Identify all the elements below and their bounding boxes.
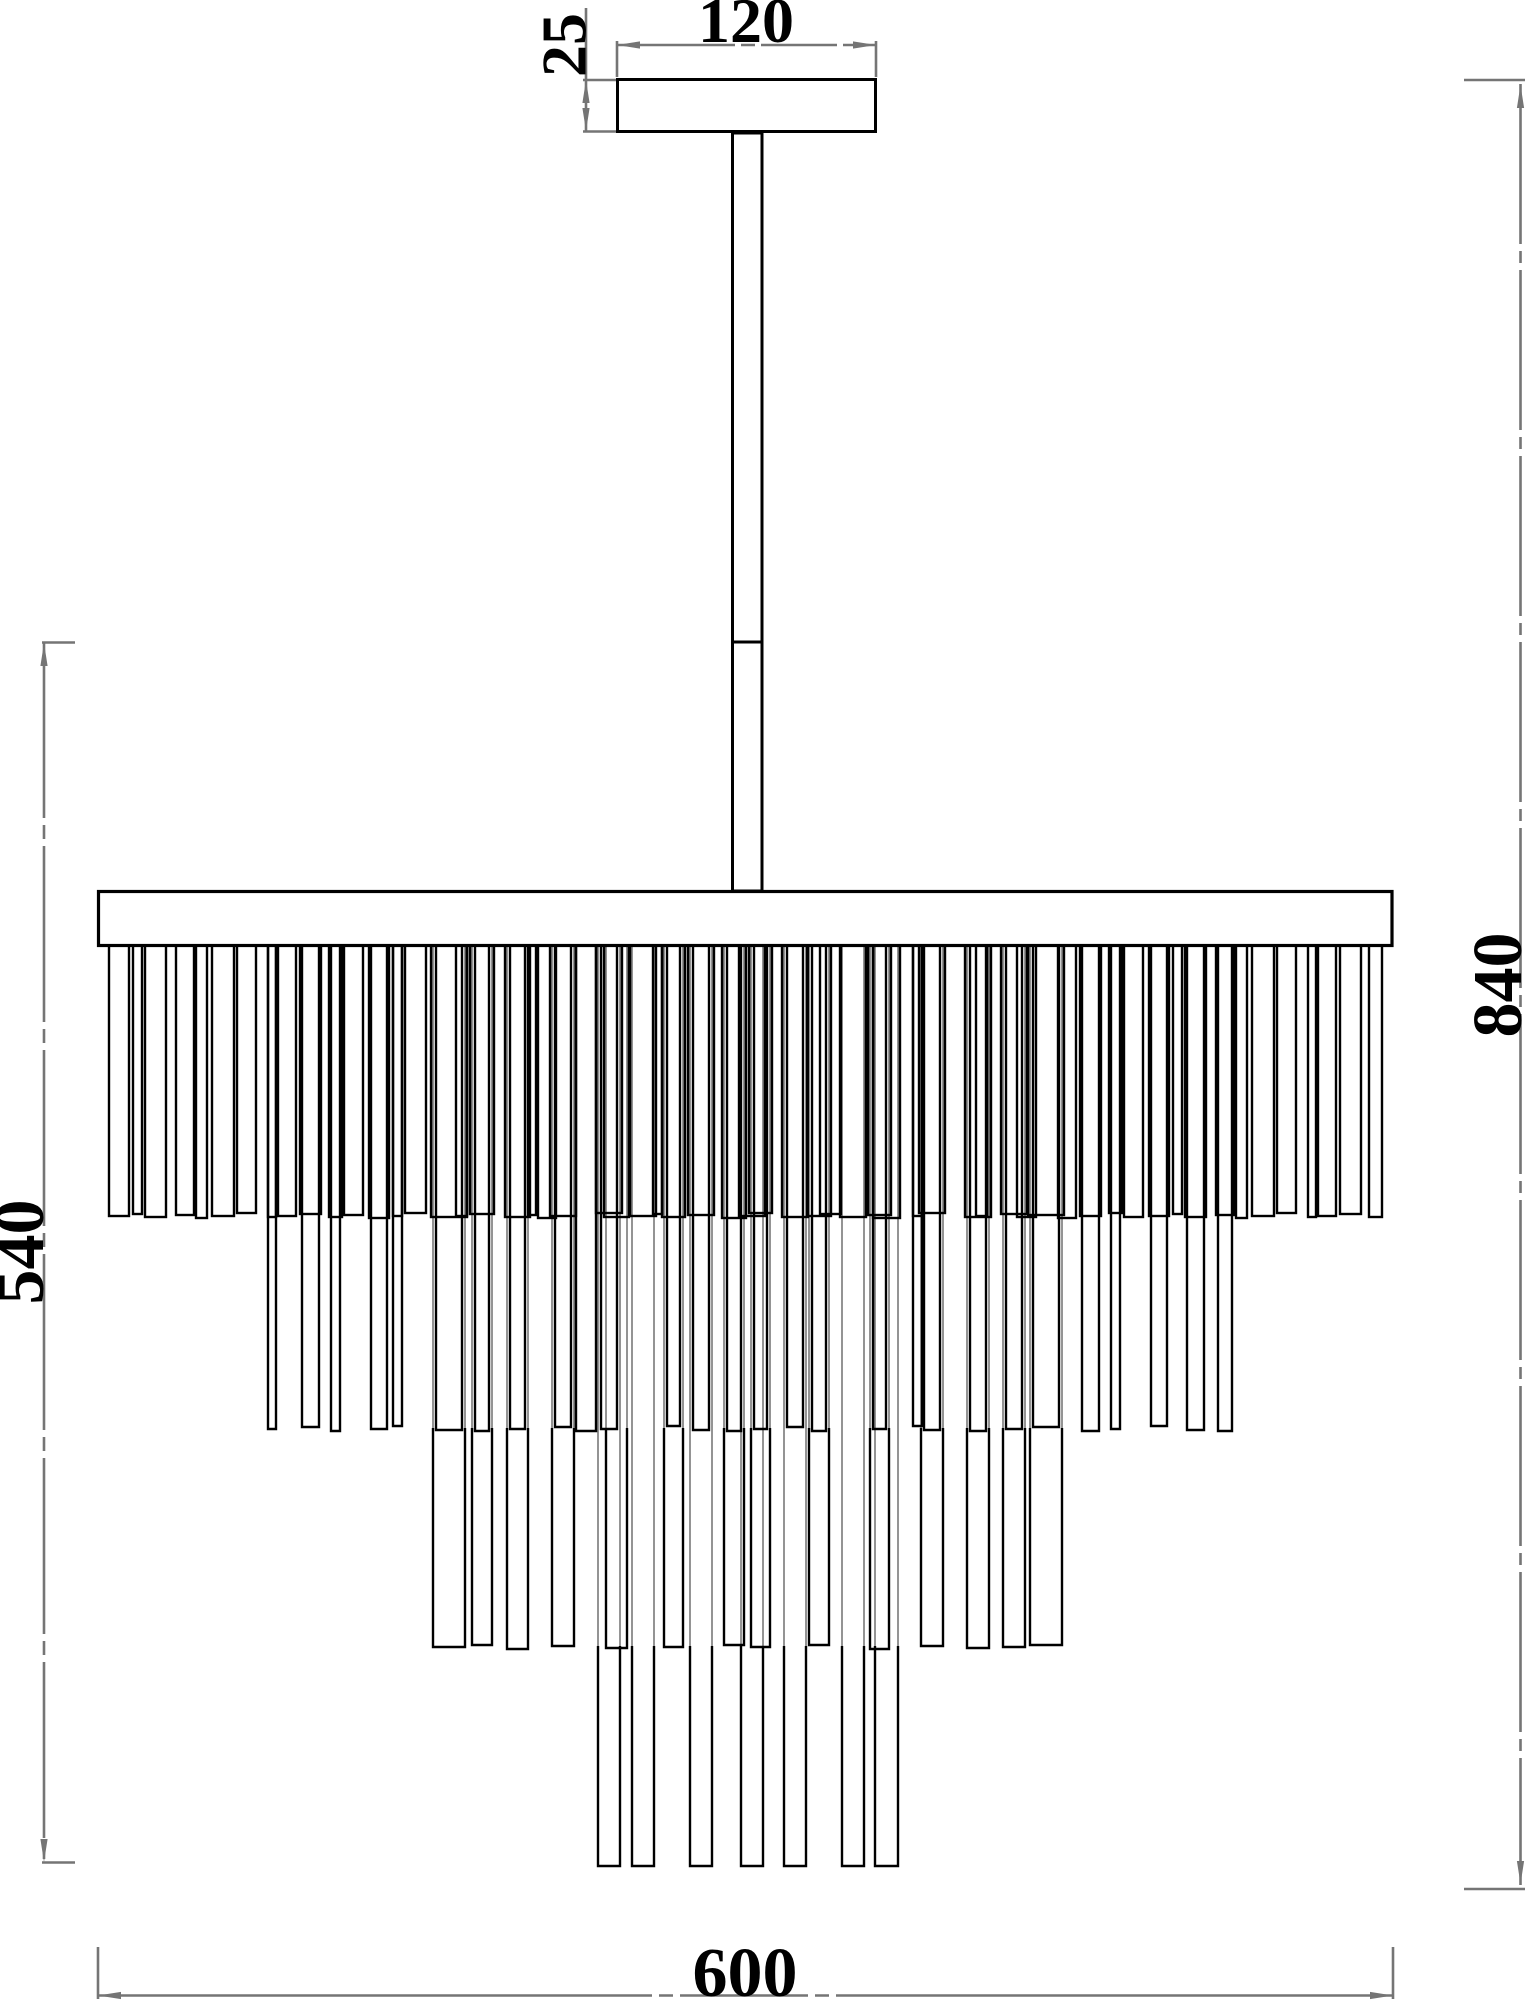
svg-text:840: 840 bbox=[1460, 933, 1525, 1038]
svg-text:540: 540 bbox=[0, 1200, 59, 1305]
svg-text:120: 120 bbox=[698, 0, 794, 56]
svg-text:25: 25 bbox=[529, 13, 600, 77]
svg-text:600: 600 bbox=[693, 1935, 798, 2000]
